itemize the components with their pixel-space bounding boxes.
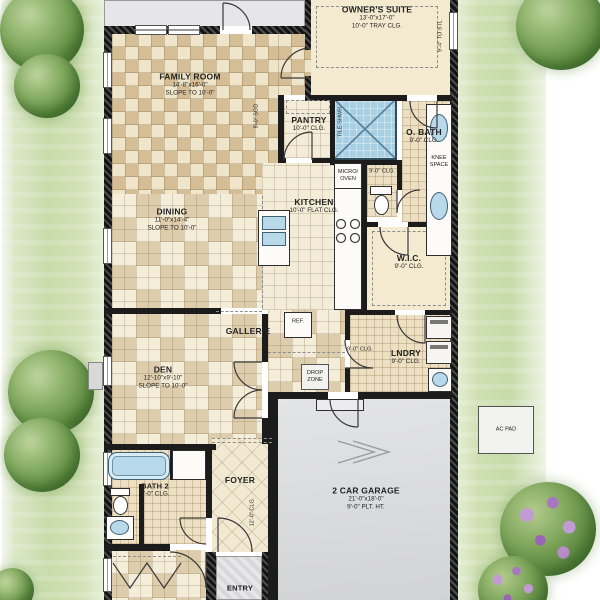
wic-door-swing	[380, 227, 408, 255]
room-ceiling: 12'-0" CLG.	[250, 498, 257, 527]
cooktop-burner	[337, 234, 346, 243]
label-text: REF.	[292, 319, 304, 326]
wc-door-swing	[397, 190, 420, 213]
room-name: GALLERIE	[226, 326, 271, 336]
garage-chevron	[353, 441, 389, 463]
label-text: SPACE	[430, 162, 449, 169]
annotation-owner-window: 9'-4" TO STL	[438, 20, 445, 52]
room-label-kitchen: KITCHEN 10'-0" FLAT CLG.	[289, 197, 338, 215]
room-ceiling: SLOPE TO 10'-0"	[147, 224, 196, 232]
den-french-door-swing	[234, 390, 262, 418]
label-text: AC PAD	[496, 427, 516, 434]
label-micro-oven: MICRO/ OVEN	[338, 169, 358, 183]
room-name: KITCHEN	[289, 197, 338, 207]
room-name: PANTRY	[291, 115, 326, 125]
room-name: DEN	[138, 364, 187, 374]
label-hall-ceiling: 9'-0" CLG.	[347, 347, 373, 354]
room-ceiling: 10'-0" FLAT CLG.	[289, 207, 338, 215]
room-label-laundry: LNDRY 9'-0" CLG.	[391, 348, 421, 366]
room-dims: 13'-0"x17'-0"	[342, 15, 412, 23]
room-name: DINING	[147, 206, 196, 216]
garage-chevron	[338, 441, 374, 463]
room-label-foyer: FOYER	[225, 475, 255, 485]
floor-plan-canvas: OWNER'S SUITE 13'-0"x17'-0" 10'-0" TRAY …	[0, 0, 600, 600]
label-text: TILE SHWR	[338, 107, 345, 137]
room-ceiling: 9'-0" CLG.	[369, 169, 395, 176]
annotation-family-door: 8'-0" SGD	[254, 104, 261, 129]
room-name: W.I.C.	[395, 253, 424, 263]
door-swing-arcs	[0, 0, 600, 600]
room-ceiling: SLOPE TO 10'-0"	[138, 382, 187, 390]
pantry-door-swing	[284, 132, 312, 160]
den-french-door-swing	[234, 362, 262, 390]
label-knee-space: KNEE SPACE	[430, 155, 449, 169]
room-label-bath2: BATH 2 9'-0" CLG.	[141, 482, 170, 499]
room-ceiling: 9'-0" CLG.	[141, 491, 170, 499]
label-foyer-ceiling: 12'-0" CLG.	[250, 498, 257, 527]
bath2-door-swing	[180, 518, 206, 544]
room-name: LNDRY	[391, 348, 421, 358]
owners-bath-door-swing	[410, 101, 437, 128]
room-ceiling: SLOPE TO 10'-0"	[159, 89, 220, 97]
room-dims: 14'-8"x16'-0"	[159, 82, 220, 90]
room-name: FAMILY ROOM	[159, 71, 220, 81]
room-name: 2 CAR GARAGE	[332, 485, 400, 495]
room-label-den: DEN 12'-10"x9'-10" SLOPE TO 10'-0"	[138, 364, 187, 389]
room-ceiling: 9'-0" PLT. HT.	[332, 503, 400, 511]
room-label-garage: 2 CAR GARAGE 21'-0"x18'-0" 9'-0" PLT. HT…	[332, 485, 400, 510]
bedroom-door-swing	[170, 552, 206, 588]
hall-door-swing	[345, 340, 373, 368]
closet-bifold-doors	[113, 563, 181, 588]
room-name: BATH 2	[141, 482, 170, 491]
room-name: OWNER'S SUITE	[342, 4, 412, 14]
owners-suite-door-swing	[281, 48, 311, 78]
label-text: MICRO/	[338, 169, 358, 176]
room-label-family-room: FAMILY ROOM 14'-8"x16'-0" SLOPE TO 10'-0…	[159, 71, 220, 96]
room-label-dining: DINING 11'-0"x14'-4" SLOPE TO 10'-0"	[147, 206, 196, 231]
label-ac-pad: AC PAD	[496, 427, 516, 434]
label-tile-shower: TILE SHWR	[338, 107, 345, 137]
label-text: DROP	[307, 370, 323, 377]
room-dims: 11'-0"x14'-4"	[147, 217, 196, 225]
label-text: 8'-0" SGD	[254, 104, 261, 129]
laundry-door-swing	[397, 315, 425, 343]
label-refrigerator: REF.	[292, 319, 304, 326]
patio-door-swing	[223, 3, 250, 30]
room-ceiling: 10'-0" CLG.	[291, 125, 326, 133]
cooktop-burner	[337, 220, 346, 229]
room-label-owners-bath: O. BATH 9'-0" CLG.	[406, 127, 442, 145]
garage-door-swing	[330, 399, 358, 427]
room-name: FOYER	[225, 475, 255, 485]
label-text: OVEN	[338, 176, 358, 183]
room-ceiling: 9'-0" CLG.	[406, 137, 442, 145]
room-ceiling: 9'-0" CLG.	[347, 347, 373, 354]
room-ceiling: 9'-0" CLG.	[395, 263, 424, 271]
room-dims: 21'-0"x18'-0"	[332, 496, 400, 504]
label-text: ZONE	[307, 377, 323, 384]
cooktop-burner	[351, 234, 360, 243]
label-drop-zone: DROP ZONE	[307, 370, 323, 384]
room-name: O. BATH	[406, 127, 442, 137]
room-label-entry: ENTRY	[227, 584, 253, 593]
room-label-owners-suite: OWNER'S SUITE 13'-0"x17'-0" 10'-0" TRAY …	[342, 4, 412, 29]
room-label-wic: W.I.C. 9'-0" CLG.	[395, 253, 424, 271]
room-label-pantry: PANTRY 10'-0" CLG.	[291, 115, 326, 133]
room-dims: 12'-10"x9'-10"	[138, 375, 187, 383]
label-wc-ceiling: 9'-0" CLG.	[369, 169, 395, 176]
cooktop-burner	[351, 220, 360, 229]
room-ceiling: 9'-0" CLG.	[391, 358, 421, 366]
room-ceiling: 10'-0" TRAY CLG.	[342, 22, 412, 30]
label-text: 9'-4" TO STL	[438, 20, 445, 52]
room-name: ENTRY	[227, 584, 253, 593]
label-text: KNEE	[430, 155, 449, 162]
front-door-swing	[218, 518, 252, 552]
room-label-gallerie: GALLERIE	[226, 326, 271, 336]
